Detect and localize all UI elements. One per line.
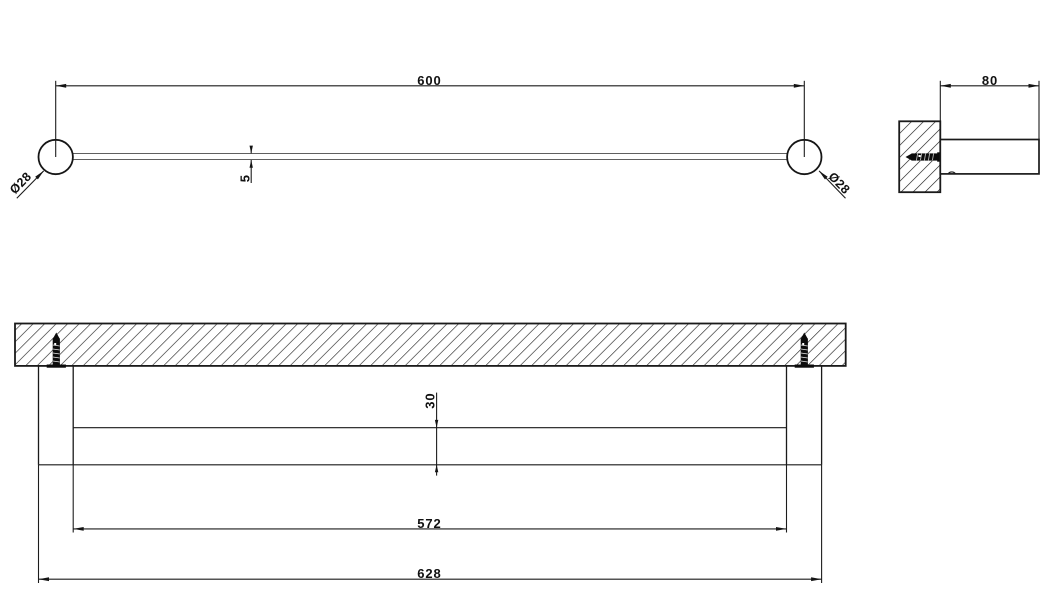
svg-text:600: 600	[417, 73, 441, 88]
svg-text:572: 572	[417, 516, 441, 531]
svg-text:5: 5	[237, 175, 252, 182]
svg-text:Ø28: Ø28	[825, 170, 852, 197]
svg-text:80: 80	[982, 73, 998, 88]
svg-text:628: 628	[417, 566, 441, 581]
svg-text:Ø28: Ø28	[7, 170, 34, 197]
svg-text:30: 30	[423, 392, 438, 408]
